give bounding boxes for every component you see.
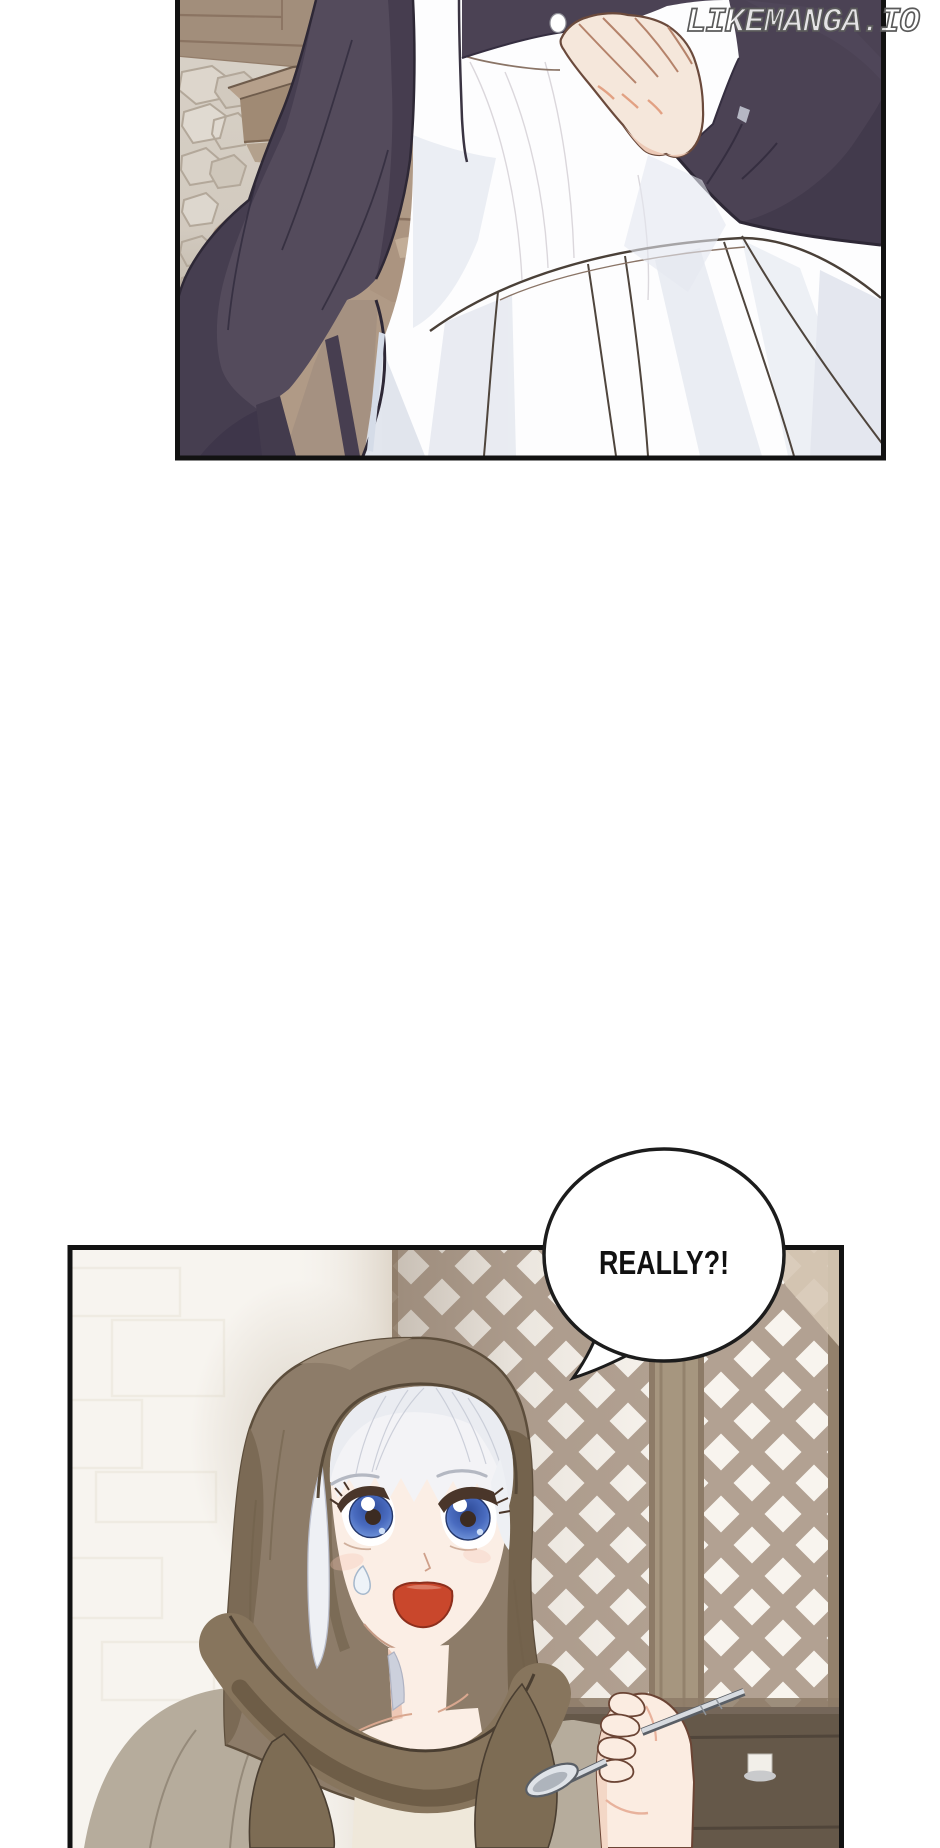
- svg-text:REALLY?!: REALLY?!: [599, 1244, 729, 1281]
- svg-text:LIKEMANGA.IO: LIKEMANGA.IO: [686, 4, 920, 42]
